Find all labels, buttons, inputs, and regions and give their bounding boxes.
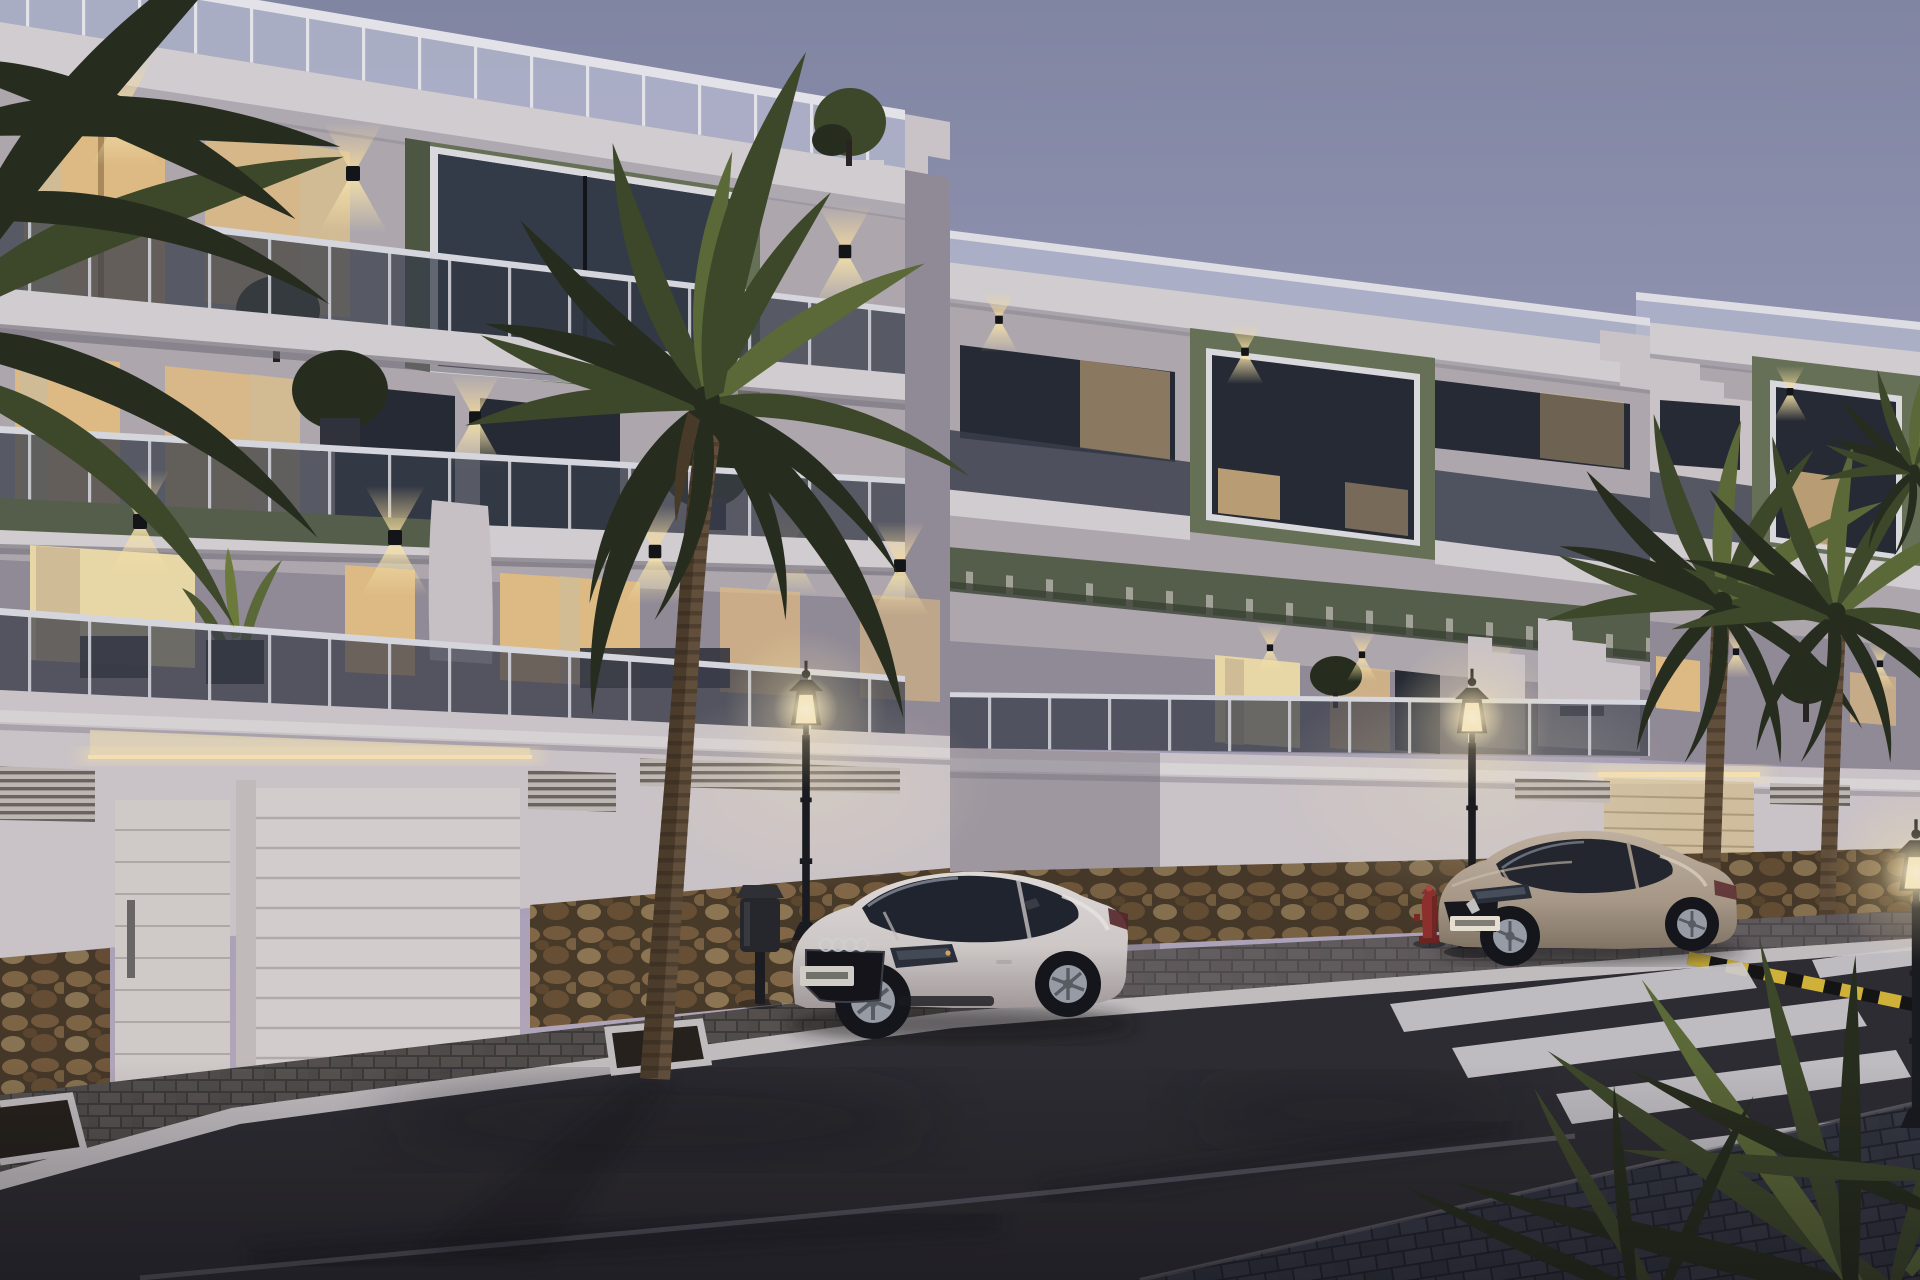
render-canvas [0, 0, 1920, 1280]
dusk-tint [0, 0, 1920, 1280]
